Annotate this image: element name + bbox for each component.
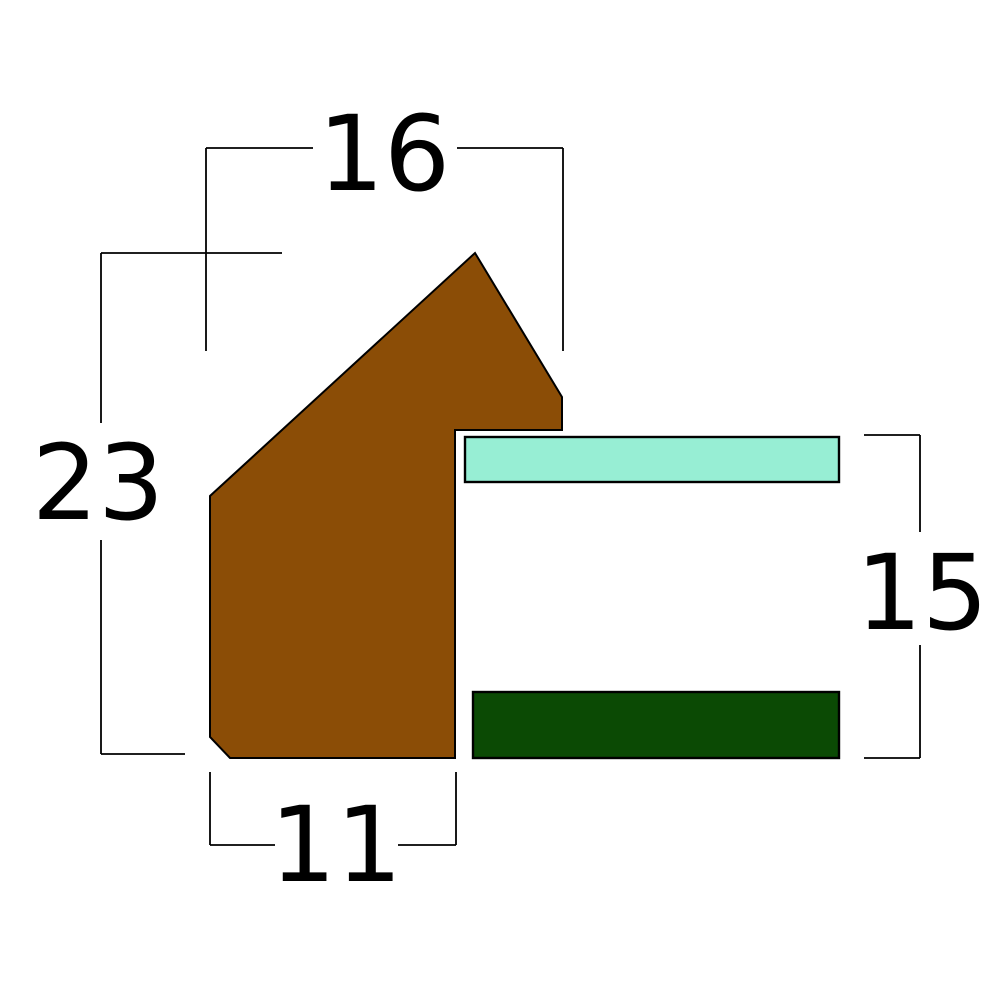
dimension-label: 15 <box>856 532 988 654</box>
dimension-label: 23 <box>32 422 164 544</box>
glass-strip <box>465 437 839 482</box>
dimension-label: 11 <box>270 784 402 906</box>
dimension-label: 16 <box>318 93 450 215</box>
backing-strip <box>473 692 839 758</box>
moulding-cross-section-diagram: 16231115 <box>0 0 1000 1000</box>
diagram-page: 16231115 <box>0 0 1000 1000</box>
